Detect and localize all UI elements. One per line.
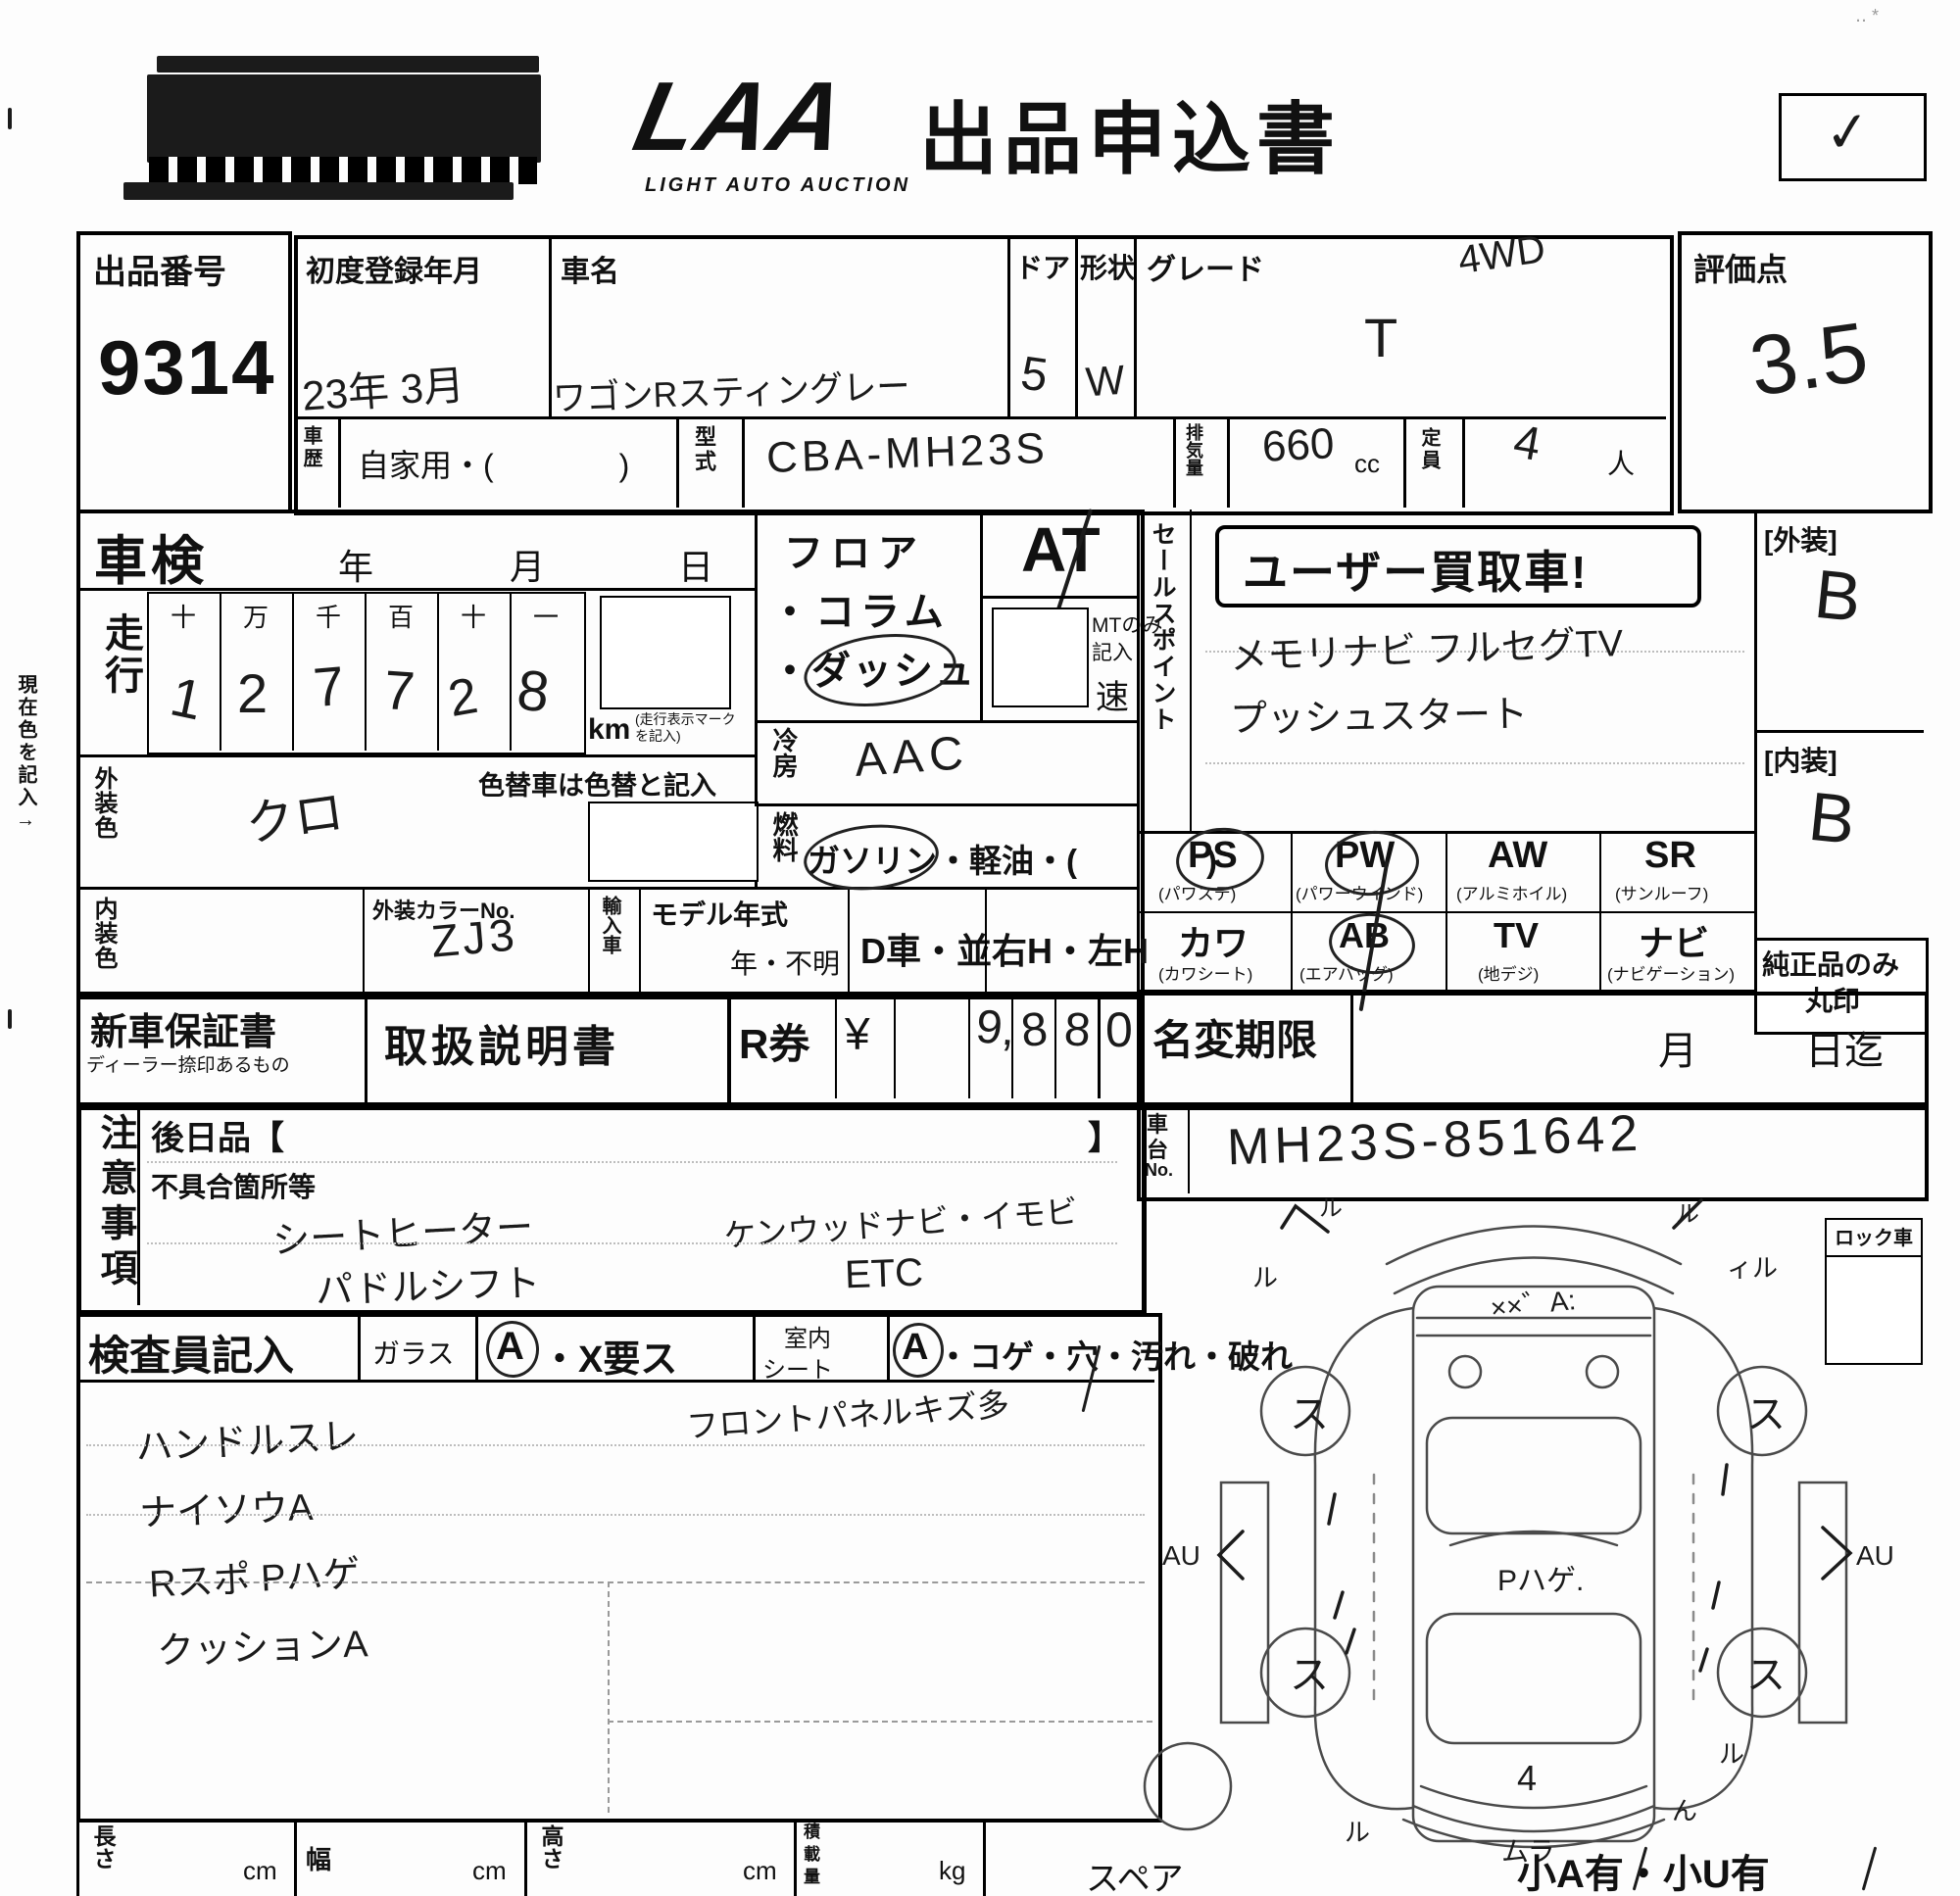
- right-rocker-panel: [1799, 1483, 1846, 1723]
- capacity-unit: 人: [1607, 443, 1635, 482]
- displacement-value: 660: [1261, 419, 1336, 472]
- fender-rear-right-mark: ル: [1719, 1739, 1744, 1769]
- first-reg-label: 初度登録年月: [306, 247, 482, 290]
- mt-note-2: 記入: [1092, 637, 1133, 666]
- at-value: AT: [1021, 513, 1101, 586]
- shape-value: W: [1084, 357, 1126, 407]
- sales-hw-line1: メモリナビ フルセグTV: [1229, 612, 1624, 680]
- center-hand-note: Pハゲ.: [1497, 1565, 1584, 1597]
- corner-tl-mark: ル: [1319, 1195, 1343, 1222]
- left-side-panel: [1315, 1308, 1413, 1809]
- d-car-options: D車・並: [860, 923, 992, 974]
- inspector-label: 検査員記入: [88, 1323, 294, 1383]
- odometer-header-5: 十: [461, 598, 486, 634]
- interior-rating-label: [内装]: [1764, 740, 1837, 779]
- r-ticket-digit-4: 0: [1105, 1001, 1133, 1058]
- handle-options: 右H・左H: [992, 923, 1149, 974]
- height-unit: cm: [743, 1856, 777, 1886]
- odometer-label: 走行: [92, 612, 149, 697]
- hand-dash-l3: [1347, 1629, 1354, 1653]
- odometer-header-6: 一: [533, 598, 559, 634]
- load-label-2: 載: [804, 1844, 820, 1867]
- rear-left-mark: ル: [1345, 1818, 1370, 1847]
- page-title: 出品申込書: [919, 76, 1341, 190]
- name-change-label: 名変期限: [1152, 1007, 1317, 1067]
- seat-label-2: シート: [762, 1350, 833, 1385]
- door-label: ドア: [1015, 247, 1070, 286]
- warranty-sub: ディーラー捺印あるもの: [86, 1050, 290, 1077]
- lot-number-label: 出品番号: [93, 245, 226, 293]
- margin-note: 現在色を記入→: [12, 674, 40, 890]
- model-code-label: 型式: [688, 425, 719, 474]
- length-label: 長さ: [86, 1824, 120, 1870]
- dimensions-strip: [76, 1819, 986, 1896]
- headlight-right: [1587, 1356, 1618, 1387]
- left-arrow-note: AU: [1162, 1540, 1200, 1571]
- odometer-digit-2: 2: [237, 661, 268, 725]
- headlight-left: [1449, 1356, 1481, 1387]
- r-ticket-digit-3: 8: [1062, 1002, 1092, 1058]
- model-code-value: CBA-MH23S: [765, 424, 1049, 483]
- odometer-unit-note: (走行表示マーク を記入): [635, 711, 753, 745]
- mt-speed-label: 速: [1096, 670, 1129, 718]
- shaken-label: 車検: [94, 517, 208, 595]
- length-unit: cm: [243, 1856, 277, 1886]
- r-ticket-label: R券: [739, 1011, 809, 1071]
- equip-kawa-name: (カワシート): [1158, 960, 1252, 985]
- color-no-value: ZJ3: [429, 907, 520, 968]
- notes-hw-4: ETC: [844, 1251, 924, 1298]
- lot-number-value: 9314: [98, 323, 276, 413]
- tailgate-hand-note: 4: [1517, 1758, 1537, 1798]
- fuel-label: 燃料: [766, 811, 803, 862]
- cooling-value: AAC: [853, 726, 970, 788]
- spare-label: スペア: [1086, 1852, 1184, 1896]
- load-label-1: 積: [804, 1822, 820, 1844]
- redacted-stamp-bar-bottom: [123, 182, 514, 200]
- model-year-label: モデル年式: [651, 894, 788, 933]
- width-label: 幅: [306, 1840, 331, 1876]
- width-unit: cm: [472, 1856, 507, 1886]
- seat-label-1: 室内: [784, 1319, 831, 1353]
- name-change-until: 日迄: [1805, 1019, 1884, 1076]
- grade-value: T: [1364, 306, 1397, 369]
- score-value: 3.5: [1744, 304, 1874, 416]
- shaken-year: 年: [338, 539, 373, 590]
- later-items-label: 後日品【: [151, 1111, 284, 1159]
- equip-tv-code: TV: [1494, 915, 1539, 956]
- corner-tr-mark: ル: [1676, 1201, 1699, 1228]
- load-unit: kg: [939, 1856, 965, 1886]
- shaken-month: 月: [510, 539, 545, 590]
- car-damage-diagram: ス ス ス ス ××゛A: Pハゲ. 4 ムラ AU AU ル ィル ル ル ル…: [1127, 1171, 1940, 1867]
- model-year-unknown: 年・不明: [730, 943, 840, 982]
- history-value: 自家用・( ): [358, 441, 629, 486]
- rear-right-mark: ん: [1672, 1796, 1697, 1825]
- mission-line2: ・コラム: [770, 580, 950, 637]
- windshield: [1427, 1418, 1641, 1533]
- hand-dash-r2: [1713, 1582, 1719, 1608]
- shape-label: 形状: [1080, 247, 1135, 286]
- displacement-label: 排気量: [1181, 423, 1206, 476]
- ext-color-label: 外装色: [86, 766, 121, 840]
- fender-right-mark: ィル: [1727, 1253, 1778, 1283]
- first-reg-value: 23年 3月: [300, 352, 466, 422]
- right-side-panel: [1654, 1308, 1752, 1809]
- name-change-month: 月: [1658, 1019, 1697, 1076]
- history-label-1: 車: [300, 425, 321, 448]
- equip-kawa-code: カワ: [1178, 915, 1249, 966]
- rear-bumper-mid: [1413, 1806, 1654, 1831]
- capacity-label: 定員: [1415, 427, 1444, 472]
- shaken-day: 日: [678, 539, 713, 590]
- hand-dash-l1: [1329, 1494, 1335, 1524]
- recolor-note: 色替車は色替と記入: [478, 764, 716, 802]
- hand-dash-l2: [1335, 1592, 1343, 1618]
- odometer-header-1: 十: [171, 598, 196, 634]
- grade-label: グレード: [1147, 245, 1264, 288]
- equip-sr-code: SR: [1644, 835, 1696, 877]
- notes-hw-2: パドルシフト: [315, 1252, 541, 1314]
- right-arrow-note: AU: [1856, 1540, 1894, 1571]
- odometer-header-4: 百: [388, 598, 414, 634]
- recolor-box: [588, 802, 759, 882]
- later-items-close: 】: [1088, 1111, 1121, 1159]
- history-label-2: 歴: [300, 448, 321, 470]
- load-label-3: 量: [804, 1867, 820, 1889]
- sales-hw-line2: プッシュスタート: [1230, 683, 1529, 742]
- wheel-mark-fl: ス: [1290, 1393, 1329, 1436]
- exterior-rating-value: B: [1811, 555, 1865, 637]
- equip-navi-code: ナビ: [1639, 915, 1709, 966]
- wheel-mark-rr: ス: [1746, 1654, 1786, 1697]
- interior-rating-value: B: [1805, 777, 1859, 859]
- score-label: 評価点: [1693, 245, 1788, 290]
- height-label: 高さ: [534, 1824, 567, 1870]
- inspector-hw-3: Rスポ Pハゲ: [148, 1542, 362, 1607]
- car-name-label: 車名: [561, 247, 619, 290]
- equip-aw-code: AW: [1488, 835, 1547, 877]
- ext-color-value: クロ: [240, 772, 347, 855]
- displacement-unit: cc: [1354, 449, 1380, 479]
- equip-navi-name: (ナビゲーション): [1607, 960, 1735, 985]
- laa-logo: LAA: [625, 61, 857, 173]
- glass-label: ガラス: [372, 1333, 454, 1372]
- hand-dash-r3: [1700, 1649, 1707, 1671]
- user-buyback-stamp-text: ユーザー買取車!: [1243, 537, 1588, 602]
- wheel-mark-rl: ス: [1290, 1654, 1329, 1697]
- notes-label: 注意事項: [88, 1113, 142, 1299]
- inspector-hw-4: クッションA: [156, 1613, 368, 1674]
- r-ticket-yen: ¥: [845, 1007, 870, 1060]
- r-ticket-digit-2: 8: [1018, 1002, 1050, 1058]
- redacted-stamp-bar-top: [157, 56, 539, 73]
- approval-checkmark: ✓: [1822, 98, 1875, 168]
- odometer-mark-box: [600, 596, 731, 709]
- fender-left-mark: ル: [1252, 1263, 1278, 1292]
- hand-dash-r1: [1723, 1465, 1727, 1494]
- odometer-digit-3: 7: [311, 654, 347, 719]
- manual-label: 取扱説明書: [384, 1011, 619, 1074]
- sales-point-label: セールスポイント: [1145, 521, 1180, 825]
- margin-tick-2: [8, 1009, 12, 1029]
- int-color-label: 内装色: [86, 897, 121, 970]
- exterior-rating-label: [外装]: [1764, 519, 1837, 559]
- odometer-header-3: 千: [316, 598, 341, 634]
- auction-sheet-page: LAA LIGHT AUTO AUCTION 出品申込書 ‥ * ✓ 現在色を記…: [0, 0, 1960, 1896]
- odometer-unit: km: [588, 713, 630, 747]
- inspector-hw-2: ナイソウA: [138, 1477, 314, 1536]
- odometer-header-2: 万: [243, 598, 269, 634]
- warranty-label: 新車保証書: [90, 1001, 276, 1055]
- glass-opts: ・X要ス: [541, 1329, 677, 1383]
- odometer-digit-4: 7: [382, 657, 417, 723]
- history-label: 車歴: [300, 425, 321, 470]
- import-car-label: 輸入車: [596, 896, 624, 954]
- redacted-stamp-fringe: [149, 157, 537, 184]
- equip-sr-name: (サンルーフ): [1615, 880, 1708, 904]
- left-rocker-panel: [1221, 1483, 1268, 1723]
- load-label: 積 載 量: [804, 1822, 820, 1889]
- equip-aw-name: (アルミホイル): [1456, 880, 1567, 904]
- wheel-mark-fr: ス: [1746, 1393, 1786, 1436]
- hand-arrow-left: [1219, 1531, 1243, 1579]
- scan-mark: ‥ *: [1855, 6, 1879, 26]
- margin-tick-1: [8, 108, 12, 129]
- mission-line1: フロア: [784, 521, 925, 578]
- rear-window: [1427, 1614, 1641, 1743]
- cooling-label: 冷房: [766, 727, 803, 778]
- mt-speed-box: [992, 608, 1089, 707]
- spare-tire-circle: [1145, 1743, 1231, 1829]
- equip-tv-name: (地デジ): [1478, 960, 1539, 985]
- laa-logo-subtitle: LIGHT AUTO AUCTION: [645, 174, 910, 197]
- defects-label: 不具合箇所等: [151, 1166, 316, 1205]
- redacted-stamp-blob: [147, 74, 541, 163]
- genuine-parts-line1: 純正品のみ: [1762, 944, 1899, 983]
